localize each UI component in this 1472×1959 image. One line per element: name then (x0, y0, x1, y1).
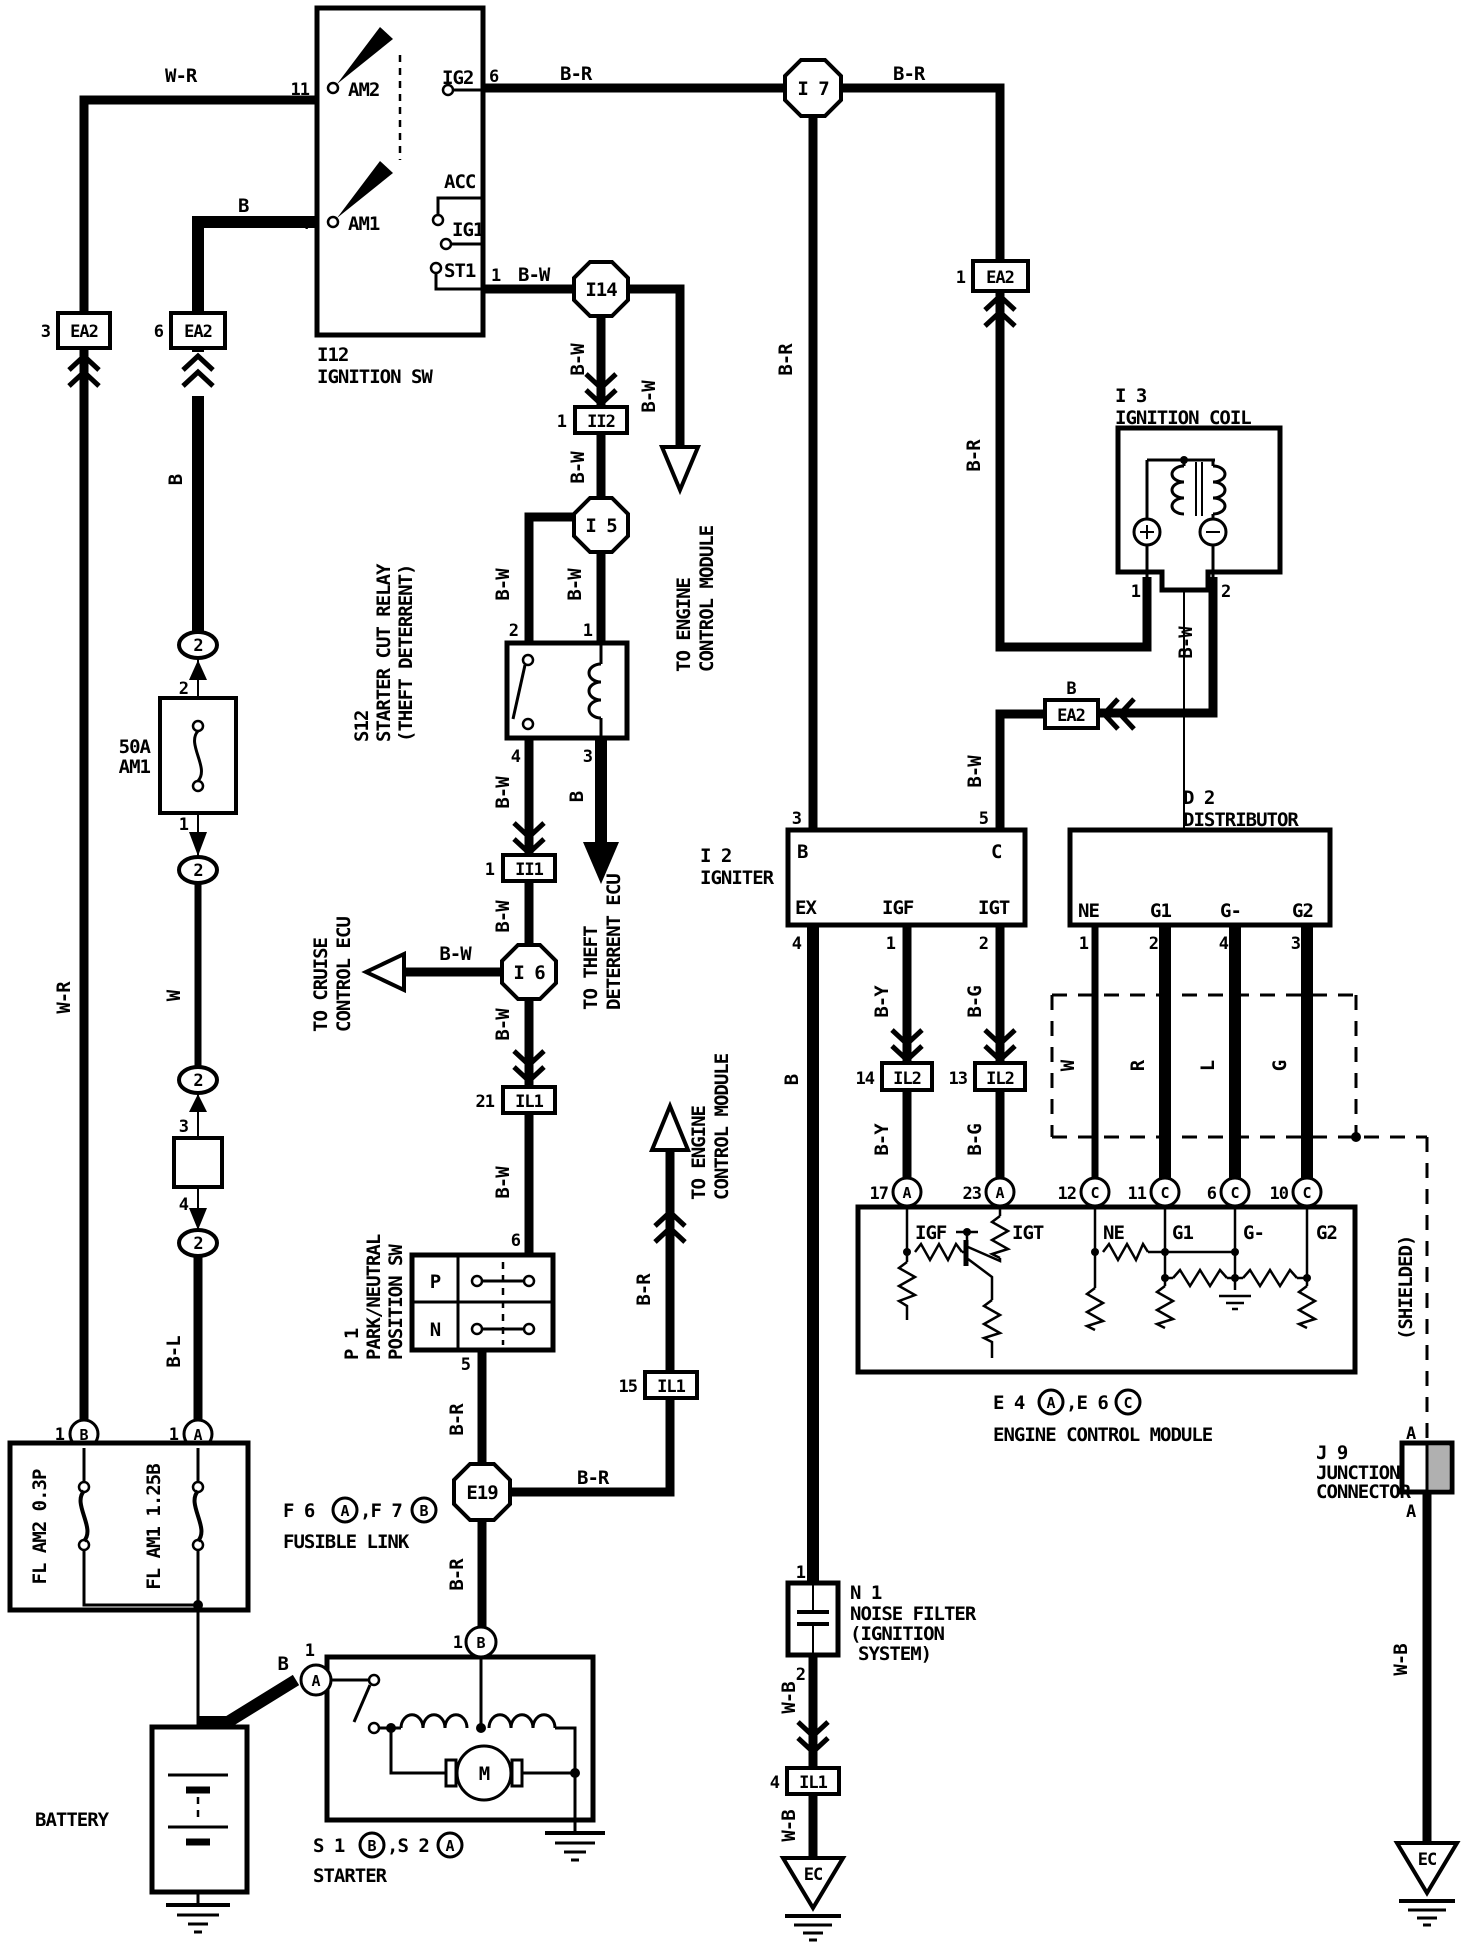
arrow-down (189, 832, 207, 856)
contact (524, 1276, 534, 1286)
terminal-st1 (431, 263, 441, 273)
component-id: D 2 (1183, 787, 1214, 809)
pin-letter: C (1302, 1184, 1311, 1202)
component-name: POSITION SW (385, 1244, 407, 1360)
junction-label: E19 (466, 1482, 498, 1504)
wire-label: B-W (492, 900, 514, 933)
terminal-igt: IGT (978, 897, 1010, 919)
component-id: P 1 (341, 1328, 363, 1360)
wire-label: B (781, 1074, 803, 1085)
caption-letter: B (367, 1837, 376, 1855)
arrow-down (189, 1208, 207, 1230)
connector-pin: 14 (856, 1069, 875, 1089)
wire-label: B-R (446, 1403, 468, 1436)
pin-3: 3 (792, 809, 802, 829)
junction-label: I 5 (585, 515, 617, 537)
pin-4: 4 (1219, 934, 1229, 954)
pin-5: 5 (979, 809, 989, 829)
label-ig2: IG2 (442, 67, 473, 89)
pin-3: 3 (179, 1117, 189, 1137)
pin-5: 5 (461, 1355, 471, 1375)
row-p: P (430, 1271, 441, 1293)
ecm-g2: G2 (1316, 1222, 1337, 1244)
fuse-rating: 50A (119, 736, 152, 758)
pin-1: 1 (583, 621, 593, 641)
connector-label: EA2 (986, 268, 1014, 288)
wire-label: B-W (492, 568, 514, 601)
pin-letter: C (1160, 1184, 1169, 1202)
dest-engine: TO ENGINE (673, 577, 695, 672)
connector-label: IL2 (893, 1069, 921, 1089)
wire-label: B-R (560, 63, 593, 85)
ecm-g1: G1 (1172, 1222, 1193, 1244)
pin-10: 10 (1270, 1184, 1289, 1204)
caption-letter: A (340, 1502, 349, 1520)
pin-letter: C (1230, 1184, 1239, 1202)
connector-label: II2 (587, 412, 615, 432)
pin-12: 12 (1058, 1184, 1076, 1204)
pin-4: 4 (179, 1195, 189, 1215)
connector-pin: 6 (154, 322, 164, 342)
ecm-igt: IGT (1012, 1222, 1044, 1244)
connector-label: IL1 (657, 1377, 685, 1397)
dest-cruise: CONTROL ECU (333, 917, 355, 1032)
fuse-box2 (174, 1138, 222, 1187)
connector-label: 2 (193, 861, 202, 881)
pin-2: 2 (509, 621, 518, 641)
wire-label: B-W (964, 755, 986, 788)
connector-pin: 1 (557, 412, 567, 432)
component-name: DISTRIBUTOR (1183, 809, 1299, 831)
park-neutral-switch: P N 6 5 P 1 PARK/NEUTRAL POSITION SW (341, 1231, 553, 1375)
label-am2: AM2 (348, 79, 379, 101)
dest-engine: CONTROL MODULE (696, 525, 718, 672)
wire-label: B-W (492, 776, 514, 809)
connector-pin: 21 (476, 1092, 495, 1112)
connector-label: IL1 (515, 1092, 543, 1112)
link-terminal (79, 1540, 89, 1550)
junction-i6: I 6 (502, 945, 556, 999)
ignition-switch: AM2 AM1 IG2 ACC IG1 ST1 11 4 6 1 I12 IGN… (291, 8, 501, 388)
junction-dot (1180, 456, 1188, 464)
pin-4: 4 (792, 934, 802, 954)
arrow-hollow-down (662, 447, 698, 490)
pin-1: 1 (1079, 934, 1089, 954)
caption: STARTER (313, 1865, 388, 1887)
junction-dot (193, 1600, 203, 1610)
label-fl-am2: FL AM2 0.3P (29, 1469, 51, 1584)
wire-label: W-R (53, 981, 75, 1014)
terminal-igf: IGF (882, 897, 914, 919)
label-st1: ST1 (444, 260, 476, 282)
dest-engine: CONTROL MODULE (711, 1053, 733, 1200)
shield-label: (SHIELDED) (1395, 1236, 1417, 1340)
wire-label: B-G (964, 986, 986, 1018)
wire-b-battery-starter (198, 1680, 296, 1722)
caption-letter: A (1046, 1394, 1055, 1412)
pin-4: 4 (511, 747, 521, 767)
distributor: D 2 DISTRIBUTOR NE G1 G- G2 1 2 4 3 (1070, 787, 1330, 954)
battery: BATTERY (35, 1610, 247, 1932)
wire-label: B-W (567, 451, 589, 484)
pin-17: 17 (870, 1184, 888, 1204)
ecm-gminus: G- (1243, 1222, 1264, 1244)
starter: A 1 B 1 B M S 1 B ,S 2 A STARTER (278, 1627, 605, 1887)
distributor-box (1070, 830, 1330, 925)
pin-1: 1 (453, 1633, 463, 1653)
connector-label: 2 (193, 1234, 202, 1254)
wiring-diagram: AM2 AM1 IG2 ACC IG1 ST1 11 4 6 1 I12 IGN… (0, 0, 1472, 1954)
pin-1: 1 (305, 1641, 315, 1661)
wire-label: B-R (577, 1467, 610, 1489)
wire-label: W-B (778, 1810, 800, 1842)
wire-label: B-W (567, 343, 589, 376)
switch-contact (369, 1675, 379, 1685)
pin-2: 2 (796, 1665, 805, 1685)
link-terminal (193, 1482, 203, 1492)
wire-label: B-W (1175, 626, 1197, 659)
wire-label: B (165, 474, 187, 485)
fuse-terminal (193, 721, 203, 731)
connector-pin: 4 (770, 1773, 780, 1793)
pin-letter: A (902, 1184, 911, 1202)
contact (524, 1324, 534, 1334)
pin-2: 2 (979, 934, 988, 954)
junction-e19: E19 (454, 1464, 510, 1520)
arrow-up (189, 660, 207, 680)
caption: F 6 (283, 1500, 315, 1522)
pin-2: 2 (1221, 582, 1230, 602)
component-name: (THEFT DETERRENT) (395, 565, 417, 742)
wire-label: B-W (492, 1166, 514, 1199)
ground-ec-label: EC (1418, 1850, 1436, 1870)
component-id: J 9 (1316, 1442, 1348, 1464)
connector-pin: 1 (956, 268, 966, 288)
dest-engine: TO ENGINE (688, 1105, 710, 1200)
row-n: N (430, 1319, 441, 1341)
mid-column: II2 1 2 1 4 3 S12 STARTER CUT RELAY (THE… (310, 374, 718, 1113)
wire-label: W-B (1390, 1644, 1412, 1676)
wire-label: B-Y (871, 985, 893, 1018)
terminal-g1: G1 (1150, 900, 1171, 922)
pin-6: 6 (489, 67, 499, 87)
pin-11: 11 (1128, 1184, 1147, 1204)
caption: ENGINE CONTROL MODULE (993, 1424, 1213, 1446)
terminal-letter: B (476, 1634, 485, 1652)
label-ig1: IG1 (452, 219, 484, 241)
arrow-hollow-left (366, 954, 404, 990)
ecm-ne: NE (1103, 1222, 1124, 1244)
pin-11: 11 (291, 80, 310, 100)
caption: S 1 (313, 1835, 345, 1857)
caption: ,S 2 (387, 1835, 429, 1857)
pin-2: 2 (1149, 934, 1158, 954)
link-terminal (193, 1540, 203, 1550)
right-ec-ground: EC (1397, 1843, 1457, 1925)
pin-letter: A (995, 1184, 1004, 1202)
caption: ,F 7 (360, 1500, 402, 1522)
pin-letter: C (1090, 1184, 1099, 1202)
wire-label: B (238, 195, 249, 217)
connector-pin: 3 (41, 322, 51, 342)
label-fl-am1: FL AM1 1.25B (143, 1464, 165, 1590)
component-id: N 1 (850, 1582, 882, 1604)
pin-2: 2 (179, 679, 188, 699)
wire-label: B-W (518, 264, 551, 286)
dest-theft: DETERRENT ECU (603, 874, 625, 1010)
fuse-name: AM1 (119, 756, 151, 778)
relay-contact (523, 719, 533, 729)
terminal-letter: A (311, 1672, 320, 1690)
wire-label: B (566, 791, 588, 802)
caption-letter: B (419, 1502, 428, 1520)
junction-i14: I14 (574, 262, 628, 316)
wire-label: L (1197, 1060, 1219, 1071)
connector-label: 2 (193, 636, 202, 656)
relay-contact (523, 655, 533, 665)
pin-1: 1 (491, 266, 501, 286)
battery-box (152, 1727, 247, 1892)
coil-box (1118, 428, 1280, 590)
wire-label: R (1127, 1059, 1149, 1071)
connector-label: EA2 (1057, 706, 1085, 726)
contact (472, 1324, 482, 1334)
fusible-link: B 1 A 1 FL AM2 0.3P FL AM1 1.25B F 6 A ,… (10, 1420, 436, 1610)
ea2-right: EA2 1 EA2 B (956, 261, 1134, 729)
terminal-ex: EX (795, 897, 817, 919)
pin-a: A (1406, 1424, 1416, 1444)
pin-1: 1 (796, 1563, 806, 1583)
terminal-g2: G2 (1292, 900, 1313, 922)
motor-letter: M (479, 1763, 490, 1785)
contact (472, 1276, 482, 1286)
component-name: CONNECTOR (1316, 1481, 1412, 1503)
wire-label: W (163, 989, 185, 1001)
component-name: NOISE FILTER (850, 1603, 977, 1625)
wire-label: B-R (775, 343, 797, 376)
switch-contact (369, 1723, 379, 1733)
wire-label: B-W (439, 943, 472, 965)
wire-labels: W-R W-R B B W B-L B-R B-R B-R B-R B-W B-… (53, 63, 1412, 1842)
harness-wires (84, 88, 1427, 1858)
pin-6: 6 (511, 1231, 521, 1251)
component-id: S12 (351, 711, 373, 742)
component-name: SYSTEM) (858, 1643, 931, 1665)
wire-label: B-W (492, 1008, 514, 1041)
ground-symbol (166, 1905, 230, 1932)
wire-label: B (278, 1653, 289, 1675)
junction-label: I 6 (513, 962, 545, 984)
pin-a: A (1406, 1502, 1416, 1522)
label-acc: ACC (444, 171, 476, 193)
noise-filter: 1 2 N 1 NOISE FILTER (IGNITION SYSTEM) I… (770, 1563, 977, 1940)
motor-brush (512, 1760, 522, 1786)
e19-branch: IL1 15 TO ENGINE CONTROL MODULE (619, 1053, 733, 1398)
wiring-diagram-page: AM2 AM1 IG2 ACC IG1 ST1 11 4 6 1 I12 IGN… (0, 0, 1472, 1954)
wire-label: B-R (633, 1273, 655, 1306)
component-name: STARTER CUT RELAY (373, 563, 395, 742)
connector-label: IL1 (799, 1773, 827, 1793)
terminal-acc (433, 215, 443, 225)
wire-label: B-W (638, 380, 660, 413)
pin-23: 23 (963, 1184, 982, 1204)
pin-4: 4 (300, 214, 310, 234)
component-id: I12 (317, 344, 348, 366)
junction-i5: I 5 (574, 498, 628, 552)
component-name: PARK/NEUTRAL (363, 1234, 385, 1360)
connector-label: IL2 (986, 1069, 1014, 1089)
engine-control-module: IL2 14 IL2 13 A 17 A 23 C 12 C 11 C 6 C … (856, 1030, 1355, 1446)
wire-label: B-G (964, 1124, 986, 1156)
junction-label: I 7 (797, 78, 829, 100)
junction-i7: I 7 (785, 60, 841, 116)
terminal-ig1 (441, 239, 451, 249)
ignition-coil: I 3 IGNITION COIL 1 2 (1115, 385, 1280, 602)
link-terminal (79, 1482, 89, 1492)
wire-label: G (1269, 1060, 1291, 1071)
ground-symbol (1399, 1901, 1455, 1925)
terminal-ne: NE (1078, 900, 1099, 922)
pin-1: 1 (179, 815, 189, 835)
dest-cruise: TO CRUISE (310, 937, 332, 1032)
pin-3: 3 (583, 747, 593, 767)
dest-theft: TO THEFT (580, 926, 602, 1010)
pin-1: 1 (1131, 582, 1141, 602)
arrow-hollow-up (652, 1106, 688, 1150)
wire-label: W-R (165, 65, 198, 87)
caption: E 4 (993, 1392, 1025, 1414)
caption-letter: A (445, 1837, 454, 1855)
junction-dot (1351, 1132, 1361, 1142)
ground-ec-label: EC (804, 1865, 822, 1885)
wire-label: W (1057, 1059, 1079, 1071)
junction-dot (476, 1723, 486, 1733)
label-am1: AM1 (348, 213, 380, 235)
left-feed-column: EA2 3 EA2 6 2 2 2 2 50A AM1 2 1 3 4 (41, 313, 236, 1256)
junction-dot (570, 1768, 580, 1778)
terminal-am2 (328, 83, 338, 93)
igniter: B C EX IGF IGT 3 5 4 1 2 I 2 IGNITER (700, 809, 1025, 954)
connector-pin: 15 (619, 1377, 638, 1397)
component-name: (IGNITION (850, 1623, 945, 1645)
connector-pin: 13 (949, 1069, 968, 1089)
caption-letter: C (1123, 1394, 1132, 1412)
junction-label: I14 (585, 279, 617, 301)
ground-symbol (545, 1820, 605, 1860)
motor-brush (446, 1760, 456, 1786)
caption: FUSIBLE LINK (283, 1531, 410, 1553)
component-name: IGNITER (700, 867, 775, 889)
wire-b-am1 (198, 222, 317, 313)
arrow-up (189, 1094, 207, 1112)
wire-label: B-L (163, 1336, 185, 1368)
component-name: IGNITION COIL (1115, 407, 1251, 429)
wire-label: W-B (778, 1682, 800, 1714)
connector-label: 2 (193, 1071, 202, 1091)
junction-connector-shade (1427, 1446, 1449, 1489)
component-id: I 3 (1115, 385, 1147, 407)
caption: ,E 6 (1066, 1392, 1108, 1414)
fuse-terminal (193, 781, 203, 791)
connector-label: EA2 (184, 322, 212, 342)
connector-pin: B (1066, 679, 1076, 699)
junction-dot (386, 1723, 396, 1733)
battery-label: BATTERY (35, 1809, 110, 1831)
component-name: IGNITION SW (317, 366, 433, 388)
terminal-gminus: G- (1220, 900, 1241, 922)
pin-3: 3 (1291, 934, 1301, 954)
connector-label: EA2 (70, 322, 98, 342)
pin-1: 1 (886, 934, 896, 954)
ground-symbol (785, 1916, 841, 1940)
connector-pin: 1 (485, 860, 495, 880)
ecm-igf: IGF (915, 1222, 947, 1244)
terminal-c: C (991, 841, 1002, 863)
component-id: I 2 (700, 845, 731, 867)
terminal-b: B (797, 841, 808, 863)
wire-label: B-W (564, 568, 586, 601)
pin-6: 6 (1207, 1184, 1217, 1204)
wire-label: B-R (446, 1558, 468, 1591)
wire-label: B-R (893, 63, 926, 85)
connector-label: II1 (515, 860, 543, 880)
terminal-am1 (328, 217, 338, 227)
wire-label: B-R (963, 439, 985, 472)
wire-label: B-Y (871, 1123, 893, 1156)
